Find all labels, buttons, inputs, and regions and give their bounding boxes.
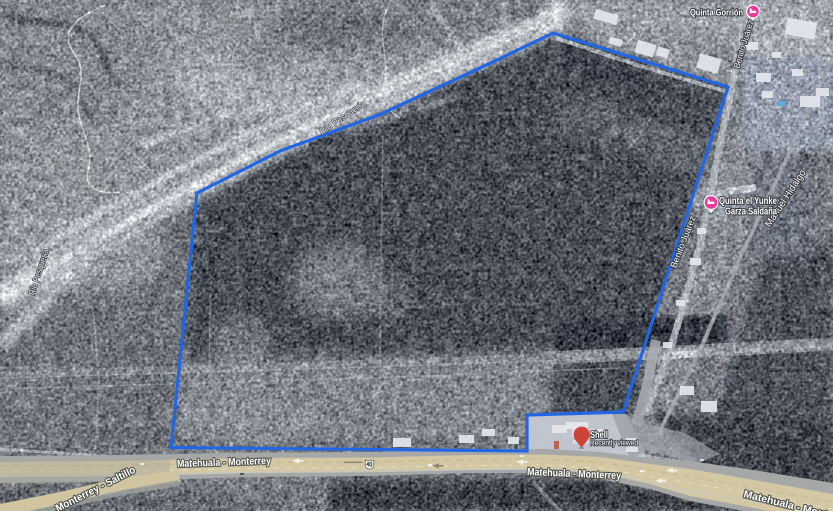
svg-text:Recently viewed: Recently viewed — [590, 438, 638, 447]
svg-text:Garza Saldaña: Garza Saldaña — [725, 207, 777, 218]
svg-text:Quinta Gorrión: Quinta Gorrión — [690, 7, 743, 18]
svg-text:Quinta el Yunke: Quinta el Yunke — [719, 196, 777, 207]
